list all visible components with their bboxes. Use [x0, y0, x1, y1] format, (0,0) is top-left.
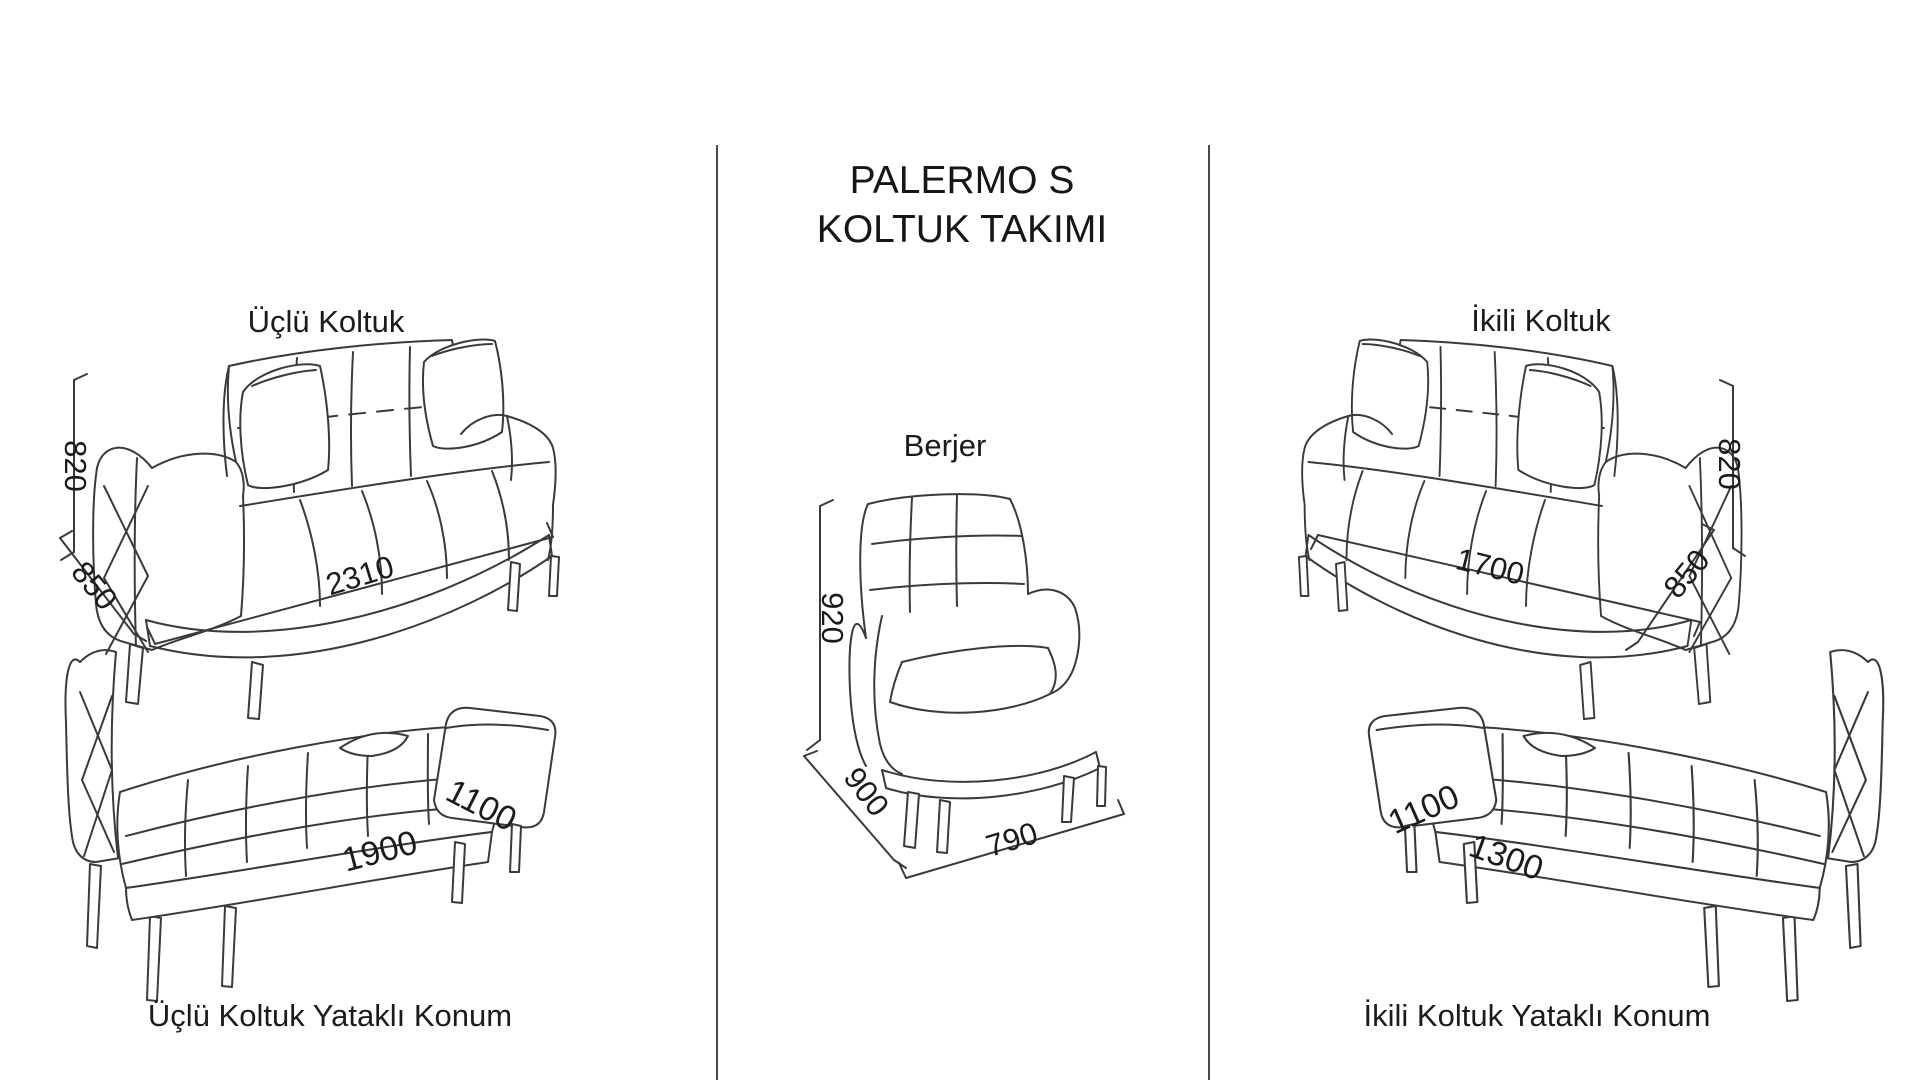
furniture-spec-sheet: PALERMO S KOLTUK TAKIMI Üçlü Koltuk İkil… — [0, 0, 1920, 1080]
two-seater-bed-caption: İkili Koltuk Yataklı Konum — [1364, 998, 1711, 1034]
two-seater-sofa-drawing — [1299, 340, 1742, 719]
three-seater-sofa-drawing — [93, 340, 559, 719]
page-title-line2: KOLTUK TAKIMI — [817, 205, 1107, 254]
two-seater-bed-drawing — [1369, 650, 1883, 1001]
page-title-line1: PALERMO S — [817, 156, 1107, 205]
armchair-label: Berjer — [904, 428, 987, 464]
three-seater-height-dim: 820 — [57, 440, 93, 492]
three-seater-label: Üçlü Koltuk — [248, 304, 405, 340]
two-seater-height-dim: 820 — [1711, 438, 1747, 490]
page-title: PALERMO S KOLTUK TAKIMI — [817, 156, 1107, 254]
armchair-height-dim: 920 — [814, 592, 850, 644]
two-seater-label: İkili Koltuk — [1471, 303, 1611, 339]
right-column-divider — [1208, 145, 1210, 1080]
armchair-dimension-lines — [804, 500, 1124, 878]
left-column-divider — [716, 145, 718, 1080]
three-seater-bed-caption: Üçlü Koltuk Yataklı Konum — [148, 998, 512, 1034]
